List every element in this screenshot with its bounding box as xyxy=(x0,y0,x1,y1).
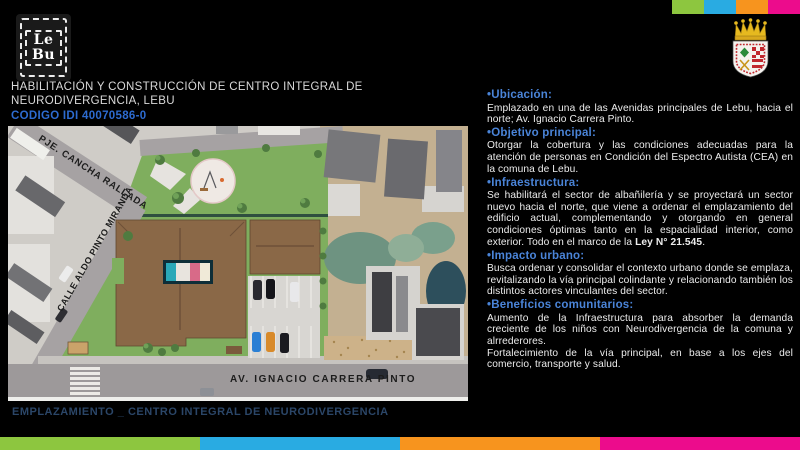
section-header: •Beneficios comunitarios: xyxy=(487,299,793,313)
site-plan-svg: PJE. CANCHA RALLADA CALLE ALDO PINTO MIR… xyxy=(8,126,468,397)
project-title-line1: HABILITACIÓN Y CONSTRUCCIÓN DE CENTRO IN… xyxy=(11,81,441,95)
parking-lot xyxy=(248,276,320,358)
logo-dashed-frame: Le Bu xyxy=(20,18,67,77)
header-block: HABILITACIÓN Y CONSTRUCCIÓN DE CENTRO IN… xyxy=(11,81,441,123)
courtyard-skylight xyxy=(163,260,213,284)
content-section: •Impacto urbano:Busca ordenar y consolid… xyxy=(487,250,793,299)
section-header: •Objetivo principal: xyxy=(487,127,793,141)
section-paragraph: Se habilitará el sector de albañilería y… xyxy=(487,190,793,249)
plan-caption: EMPLAZAMIENTO _ CENTRO INTEGRAL DE NEURO… xyxy=(12,406,472,418)
site-plan-image: PJE. CANCHA RALLADA CALLE ALDO PINTO MIR… xyxy=(8,126,468,401)
section-paragraph: Fortalecimiento de la vía principal, en … xyxy=(487,348,793,371)
section-paragraph: Busca ordenar y consolidar el contexto u… xyxy=(487,263,793,298)
green-segment xyxy=(0,437,200,450)
section-header: •Impacto urbano: xyxy=(487,250,793,264)
section-paragraph: Emplazado en una de las Avenidas princip… xyxy=(487,103,793,126)
content-section: •Infraestructura:Se habilitará el sector… xyxy=(487,177,793,249)
lebu-logo: Le Bu xyxy=(16,14,71,81)
orange-segment xyxy=(400,437,600,450)
content-sections: •Ubicación:Emplazado en una de las Aveni… xyxy=(487,88,793,371)
lebu-municipal-crest-icon xyxy=(727,17,774,79)
section-header: •Infraestructura: xyxy=(487,177,793,191)
orange-square xyxy=(736,0,768,14)
blue-square xyxy=(704,0,736,14)
plan-bottom-edge xyxy=(8,397,468,401)
content-section: •Objetivo principal:Otorgar la cobertura… xyxy=(487,127,793,176)
content-section: •Beneficios comunitarios:Aumento de la I… xyxy=(487,299,793,371)
content-section: •Ubicación:Emplazado en una de las Aveni… xyxy=(487,89,793,126)
green-square xyxy=(672,0,704,14)
blue-segment xyxy=(200,437,400,450)
section-paragraph: Aumento de la Infraestructura para absor… xyxy=(487,313,793,348)
logo-line1: Le xyxy=(32,33,55,48)
section-header: •Ubicación: xyxy=(487,89,793,103)
project-code: CODIGO IDI 40070586-0 xyxy=(11,109,441,123)
street-label-av-ignacio-carrera-pinto: AV. IGNACIO CARRERA PINTO xyxy=(230,374,416,385)
section-paragraph: Otorgar la cobertura y las condiciones a… xyxy=(487,140,793,175)
logo-line2: Bu xyxy=(32,48,55,63)
bottom-color-bar xyxy=(0,437,800,450)
project-title-line2: NEURODIVERGENCIA, LEBU xyxy=(11,95,441,109)
top-color-squares xyxy=(672,0,800,14)
pink-segment xyxy=(600,437,800,450)
pink-square xyxy=(768,0,800,14)
logo-text-box: Le Bu xyxy=(25,30,62,66)
crest-svg xyxy=(727,17,774,79)
